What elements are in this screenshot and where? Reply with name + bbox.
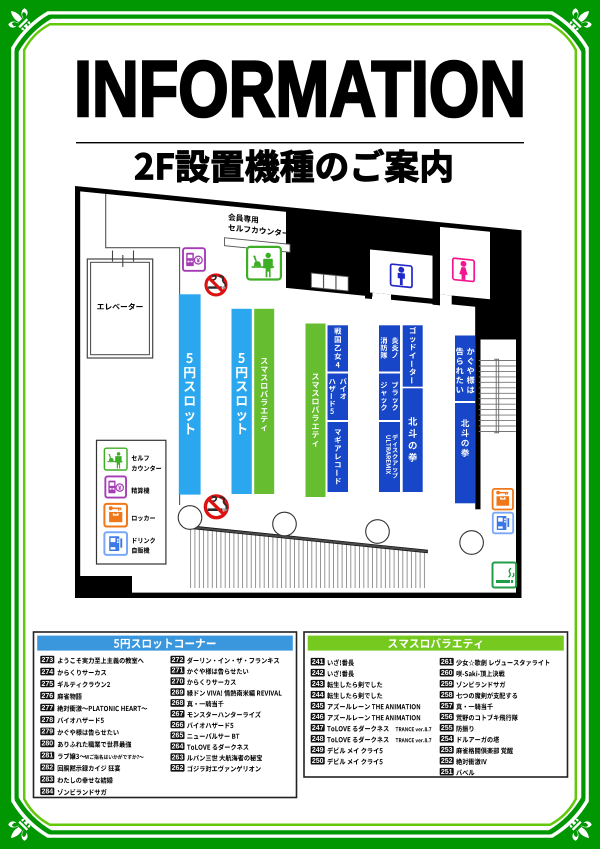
svg-text:260: 260: [441, 670, 453, 677]
svg-text:278: 278: [41, 717, 53, 724]
svg-text:255: 255: [441, 725, 453, 732]
svg-text:268: 268: [172, 700, 184, 707]
svg-text:270: 270: [172, 679, 184, 686]
svg-text:261: 261: [441, 659, 453, 666]
svg-text:254: 254: [441, 736, 453, 743]
svg-text:256: 256: [441, 714, 453, 721]
svg-text:247: 247: [312, 725, 324, 732]
svg-text:281: 281: [41, 753, 53, 760]
svg-text:284: 284: [41, 789, 53, 796]
svg-text:276: 276: [41, 693, 53, 700]
svg-text:INFORMATION: INFORMATION: [74, 44, 526, 133]
svg-text:251: 251: [441, 769, 453, 776]
svg-text:269: 269: [172, 689, 184, 696]
svg-text:242: 242: [312, 670, 324, 677]
svg-text:244: 244: [312, 692, 324, 699]
svg-text:262: 262: [172, 765, 184, 772]
svg-text:257: 257: [441, 703, 453, 710]
svg-text:249: 249: [312, 747, 324, 754]
svg-text:280: 280: [41, 741, 53, 748]
svg-text:282: 282: [41, 765, 53, 772]
svg-text:272: 272: [172, 657, 184, 664]
svg-text:273: 273: [41, 657, 53, 664]
svg-text:246: 246: [312, 714, 324, 721]
svg-text:241: 241: [312, 659, 324, 666]
svg-text:245: 245: [312, 703, 324, 710]
svg-text:263: 263: [172, 754, 184, 761]
svg-text:248: 248: [312, 736, 324, 743]
svg-text:264: 264: [172, 744, 184, 751]
svg-text:265: 265: [172, 733, 184, 740]
svg-text:243: 243: [312, 681, 324, 688]
svg-text:274: 274: [41, 669, 53, 676]
svg-text:277: 277: [41, 705, 53, 712]
svg-text:275: 275: [41, 681, 53, 688]
svg-text:267: 267: [172, 711, 184, 718]
svg-text:253: 253: [441, 747, 453, 754]
svg-text:266: 266: [172, 722, 184, 729]
svg-text:279: 279: [41, 729, 53, 736]
svg-text:258: 258: [441, 692, 453, 699]
svg-text:250: 250: [312, 758, 324, 765]
svg-text:283: 283: [41, 777, 53, 784]
svg-text:259: 259: [441, 681, 453, 688]
svg-text:252: 252: [441, 758, 453, 765]
svg-text:271: 271: [172, 668, 184, 675]
